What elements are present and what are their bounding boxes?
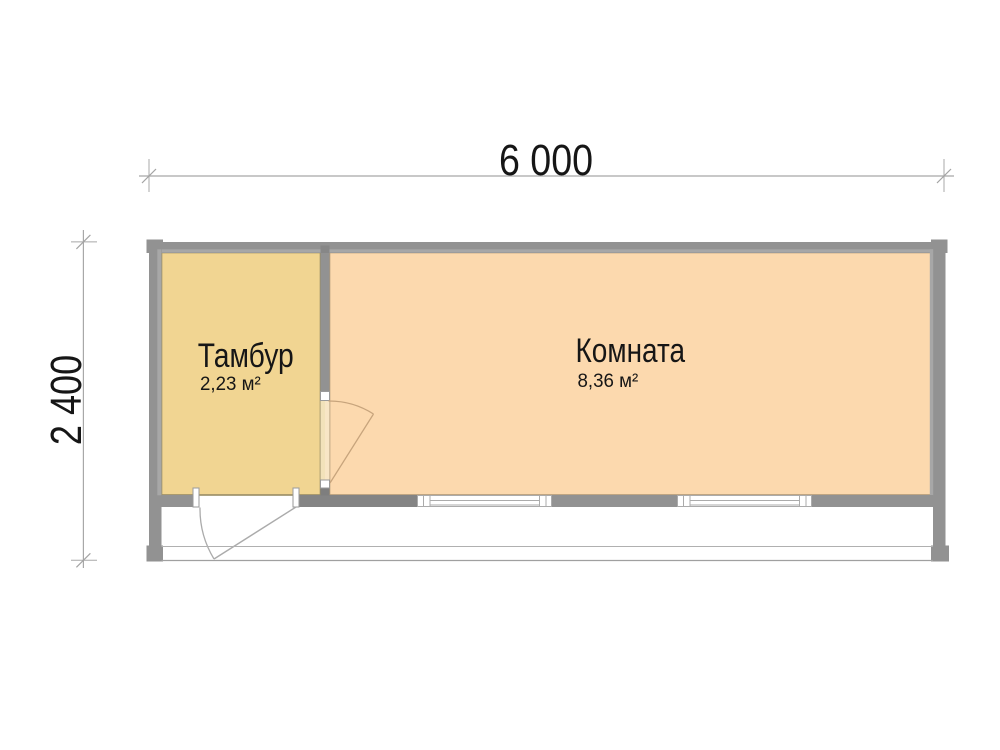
svg-text:Тамбур: Тамбур (198, 336, 294, 374)
svg-text:6 000: 6 000 (499, 135, 593, 184)
svg-text:Комната: Комната (576, 331, 686, 369)
svg-text:2 400: 2 400 (42, 355, 91, 445)
svg-text:8,36 м²: 8,36 м² (578, 371, 639, 392)
svg-text:2,23 м²: 2,23 м² (200, 374, 261, 395)
